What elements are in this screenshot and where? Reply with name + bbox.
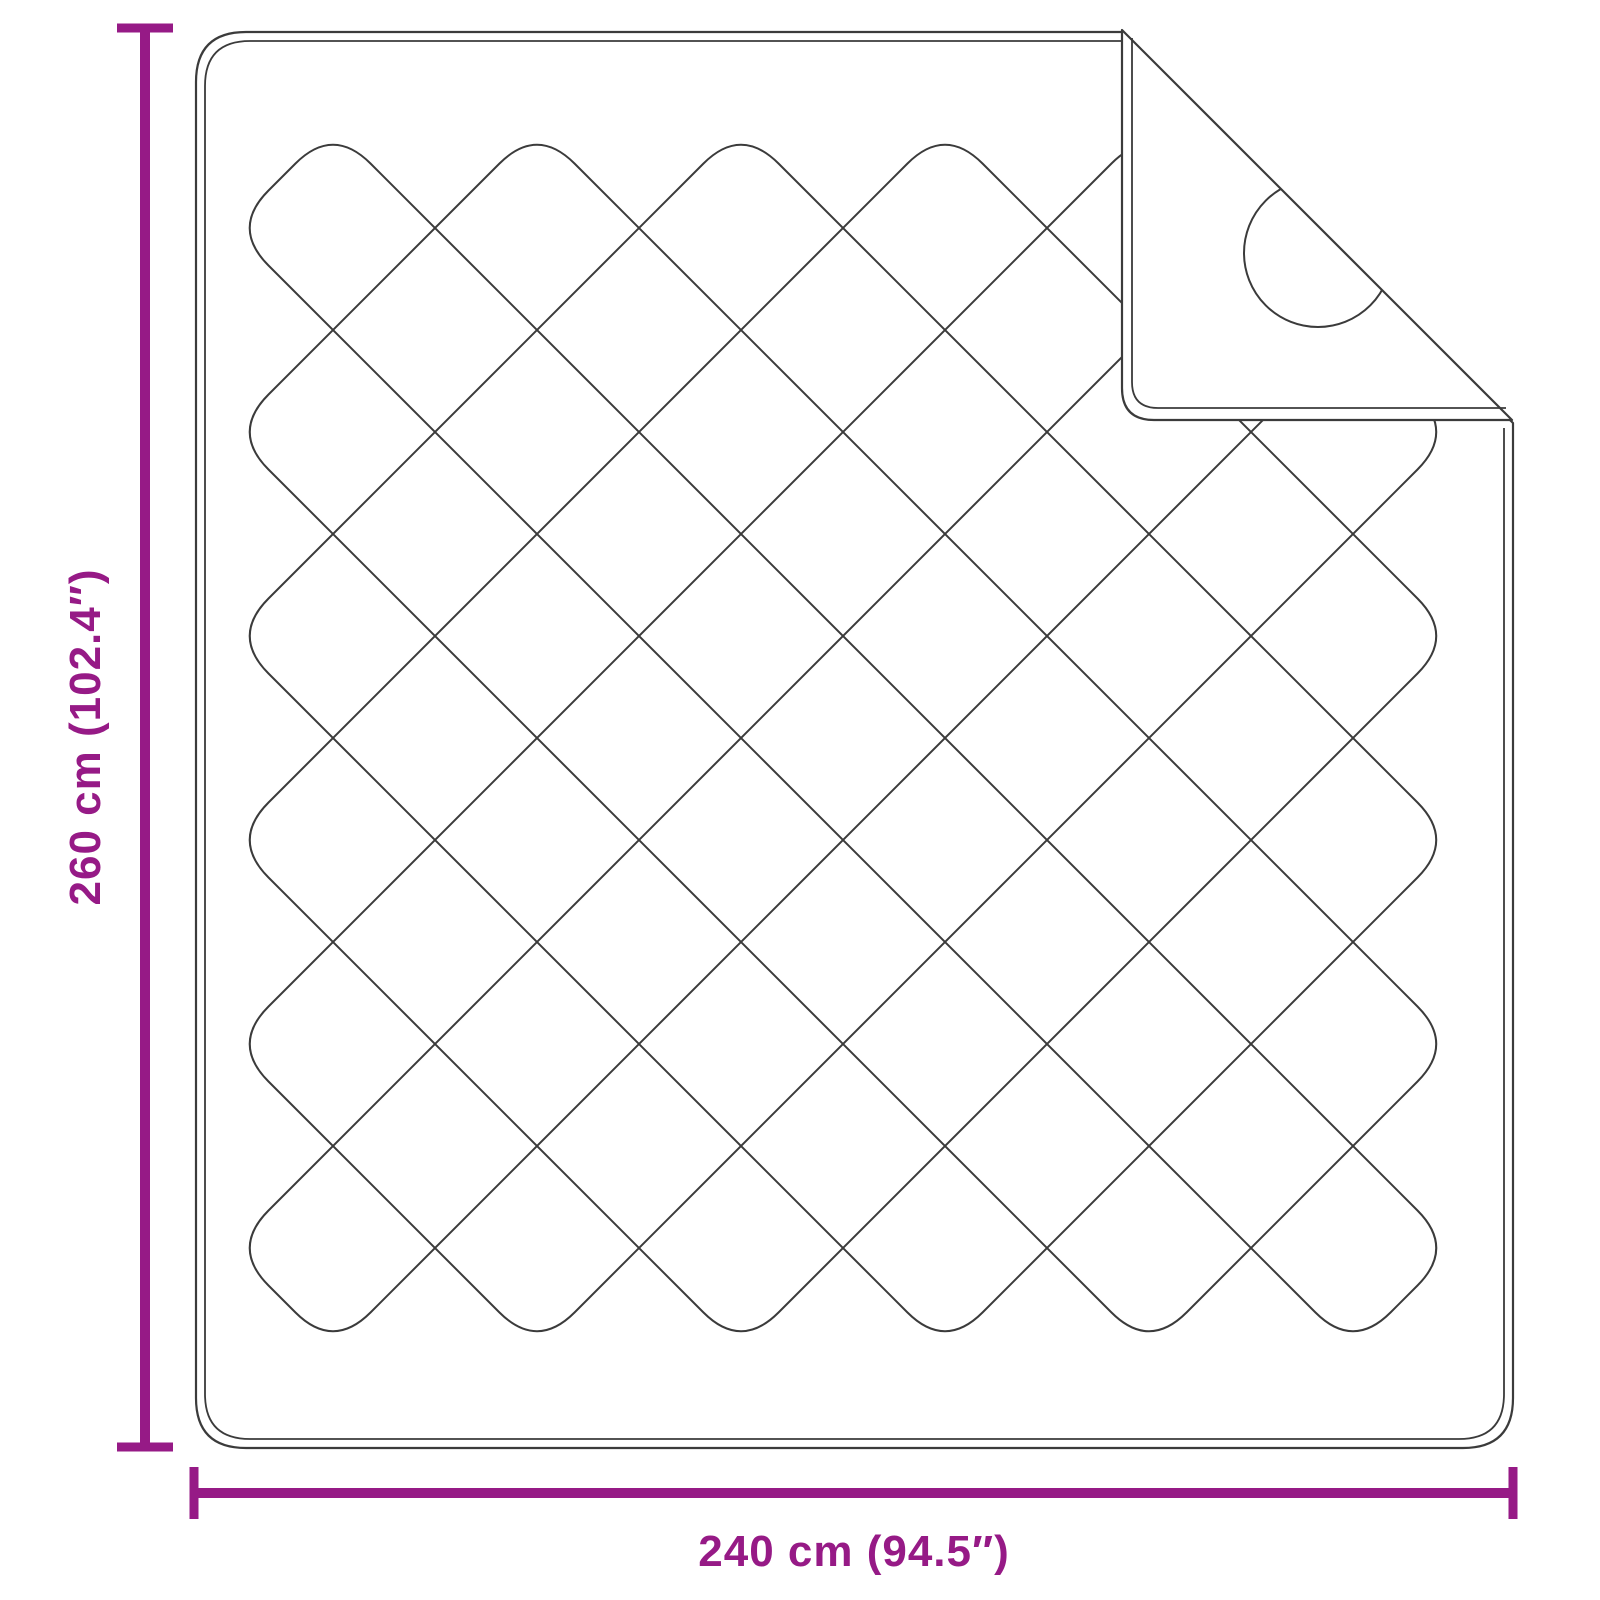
folded-corner-flap (1122, 30, 1512, 420)
blanket-diagram-svg (0, 0, 1600, 1600)
product-dimension-diagram: 260 cm (102.4″) 240 cm (94.5″) (0, 0, 1600, 1600)
width-dimension-label: 240 cm (94.5″) (698, 1527, 1009, 1577)
height-dimension-label: 260 cm (102.4″) (61, 569, 111, 906)
